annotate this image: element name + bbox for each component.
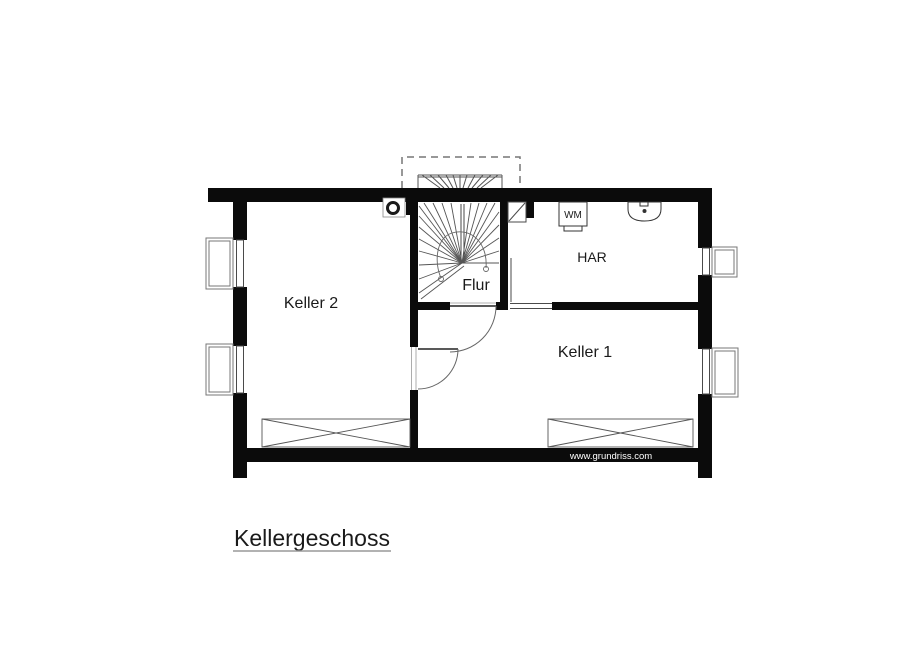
floorplan-page: WM Keller 2 Keller 1 Flur HAR www.grundr… xyxy=(0,0,920,654)
wall-keller2-upper xyxy=(410,202,418,347)
lightwell-right-lower xyxy=(712,348,738,397)
window-left-lower xyxy=(233,346,247,393)
watermark: www.grundriss.com xyxy=(569,451,652,462)
wall-top xyxy=(208,188,712,202)
drain-icon xyxy=(383,198,405,217)
door-flur-keller1 xyxy=(450,303,496,352)
room-label-keller1: Keller 1 xyxy=(558,344,612,361)
duct-icon xyxy=(508,202,526,222)
wall-pier-har xyxy=(526,202,534,218)
storage-box-keller1 xyxy=(548,419,693,447)
window-right-lower xyxy=(698,349,712,394)
wall-flur-har xyxy=(500,202,508,302)
room-label-flur: Flur xyxy=(462,277,490,294)
room-label-keller2: Keller 2 xyxy=(284,295,338,312)
floorplan-drawing: WM Keller 2 Keller 1 Flur HAR www.grundr… xyxy=(0,0,920,654)
room-label-har: HAR xyxy=(577,249,607,265)
door-har-keller1 xyxy=(510,258,552,309)
lightwell-right-upper xyxy=(712,247,737,277)
wall-har-keller1 xyxy=(552,302,698,310)
storage-box-keller2 xyxy=(262,419,410,447)
lightwell-left-upper xyxy=(206,238,233,289)
window-left-upper xyxy=(233,240,247,287)
wall-right xyxy=(698,188,712,478)
wall-flur-bottom-left xyxy=(410,302,450,310)
washing-machine-label: WM xyxy=(564,210,582,221)
interior-walls xyxy=(406,202,698,448)
page-title: Kellergeschoss xyxy=(234,525,390,551)
wall-keller2-lower xyxy=(410,390,418,448)
window-right-upper xyxy=(698,248,712,275)
sink-icon xyxy=(628,202,661,221)
door-keller2-keller1 xyxy=(412,347,459,390)
lightwell-left-lower xyxy=(206,344,233,395)
wall-stub-keller2 xyxy=(406,202,411,215)
stair-above-icon xyxy=(418,175,502,188)
wall-flur-bottom-mid xyxy=(496,302,508,310)
